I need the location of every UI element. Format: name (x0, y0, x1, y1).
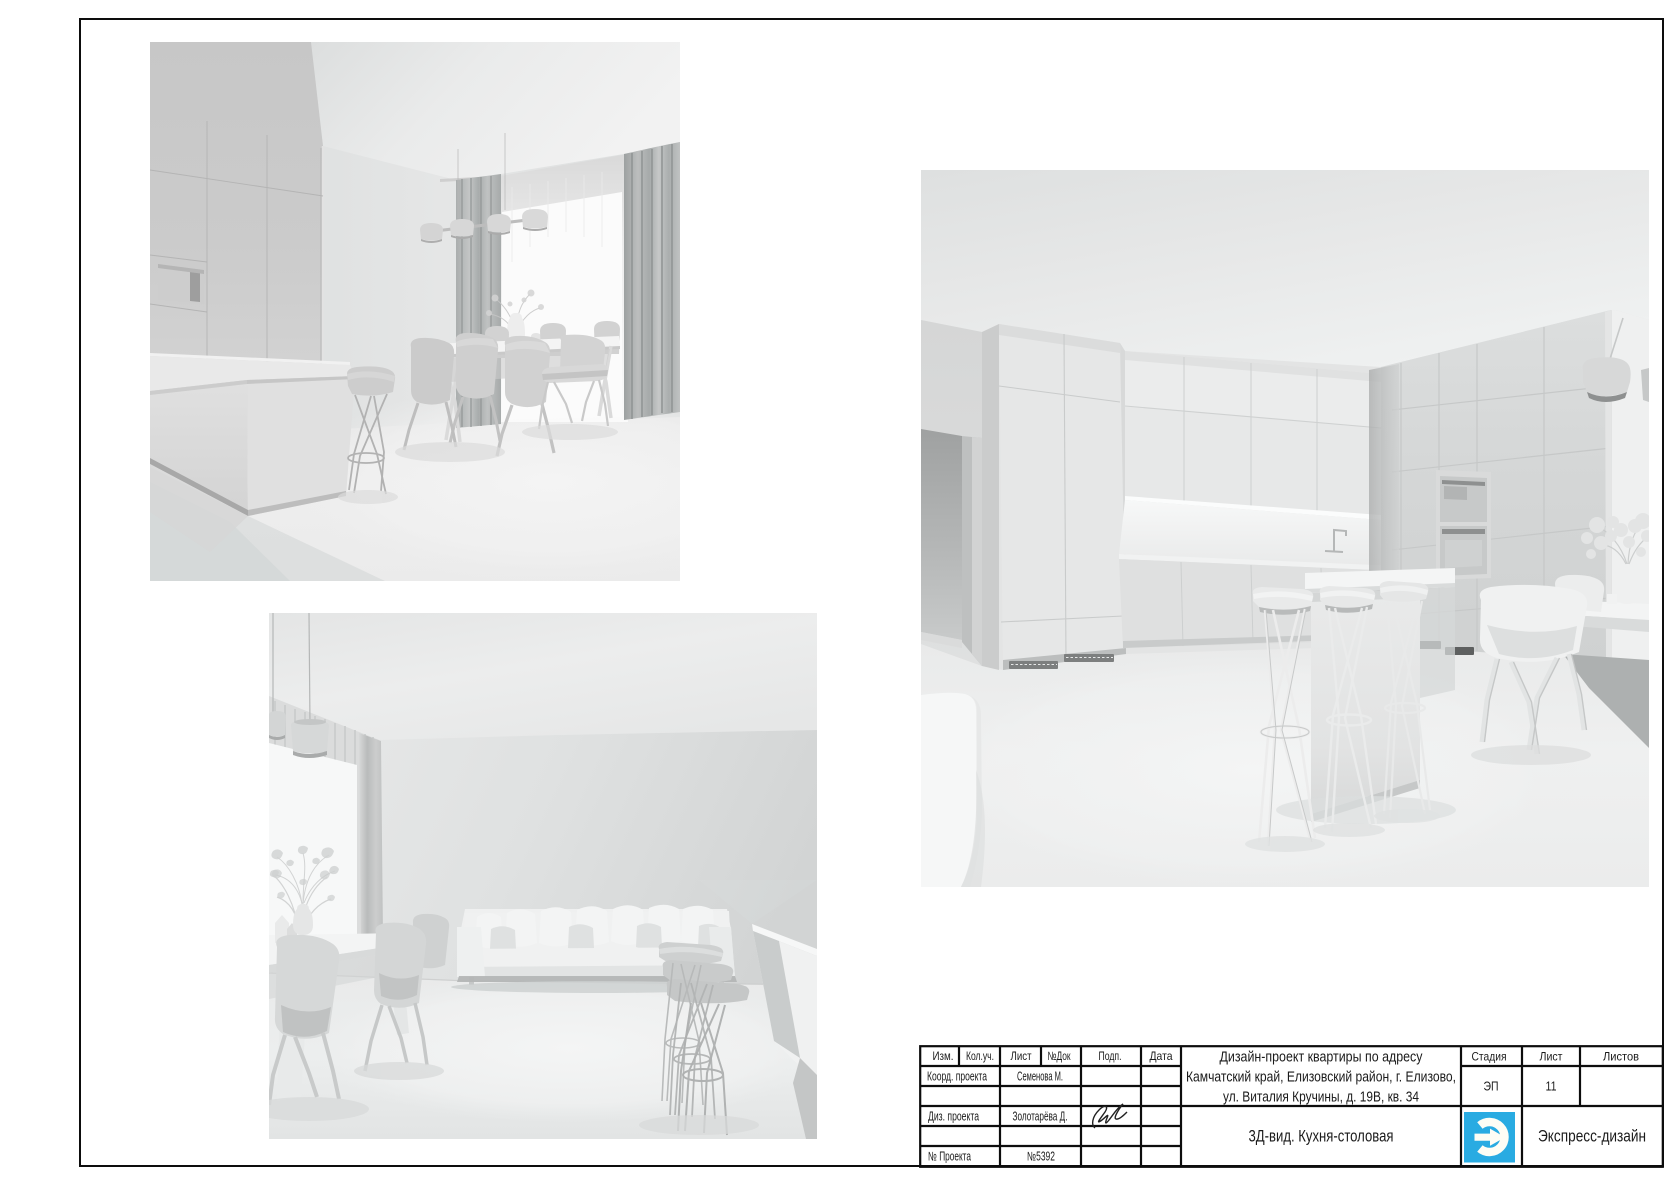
svg-text:Листов: Листов (1603, 1050, 1639, 1064)
svg-text:Кол.уч.: Кол.уч. (966, 1049, 994, 1063)
svg-text:11: 11 (1546, 1079, 1557, 1094)
svg-text:Семенова М.: Семенова М. (1017, 1070, 1063, 1084)
svg-text:3Д-вид. Кухня-столовая: 3Д-вид. Кухня-столовая (1249, 1127, 1394, 1146)
svg-text:ЭП: ЭП (1484, 1079, 1499, 1094)
svg-text:Дизайн-проект квартиры по адре: Дизайн-проект квартиры по адресу (1220, 1049, 1423, 1066)
svg-text:№5392: №5392 (1027, 1150, 1055, 1164)
svg-text:№Док: №Док (1048, 1049, 1072, 1063)
svg-text:Изм.: Изм. (933, 1049, 954, 1063)
svg-text:№ Проекта: № Проекта (928, 1150, 971, 1164)
svg-text:Стадия: Стадия (1472, 1050, 1507, 1064)
svg-text:Диз. проекта: Диз. проекта (928, 1110, 979, 1124)
svg-text:ул. Виталия Кручины, д. 19В, к: ул. Виталия Кручины, д. 19В, кв. 34 (1223, 1089, 1419, 1106)
svg-text:Камчатский край, Елизовский ра: Камчатский край, Елизовский район, г. Ел… (1186, 1069, 1456, 1086)
svg-text:Подп.: Подп. (1099, 1049, 1122, 1063)
svg-text:Экспресс-дизайн: Экспресс-дизайн (1538, 1127, 1646, 1146)
svg-text:Золотарёва Д.: Золотарёва Д. (1013, 1110, 1068, 1124)
svg-text:Лист: Лист (1540, 1050, 1563, 1064)
svg-text:Коорд. проекта: Коорд. проекта (927, 1070, 987, 1084)
svg-text:Дата: Дата (1150, 1049, 1173, 1063)
svg-text:Лист: Лист (1011, 1049, 1032, 1063)
